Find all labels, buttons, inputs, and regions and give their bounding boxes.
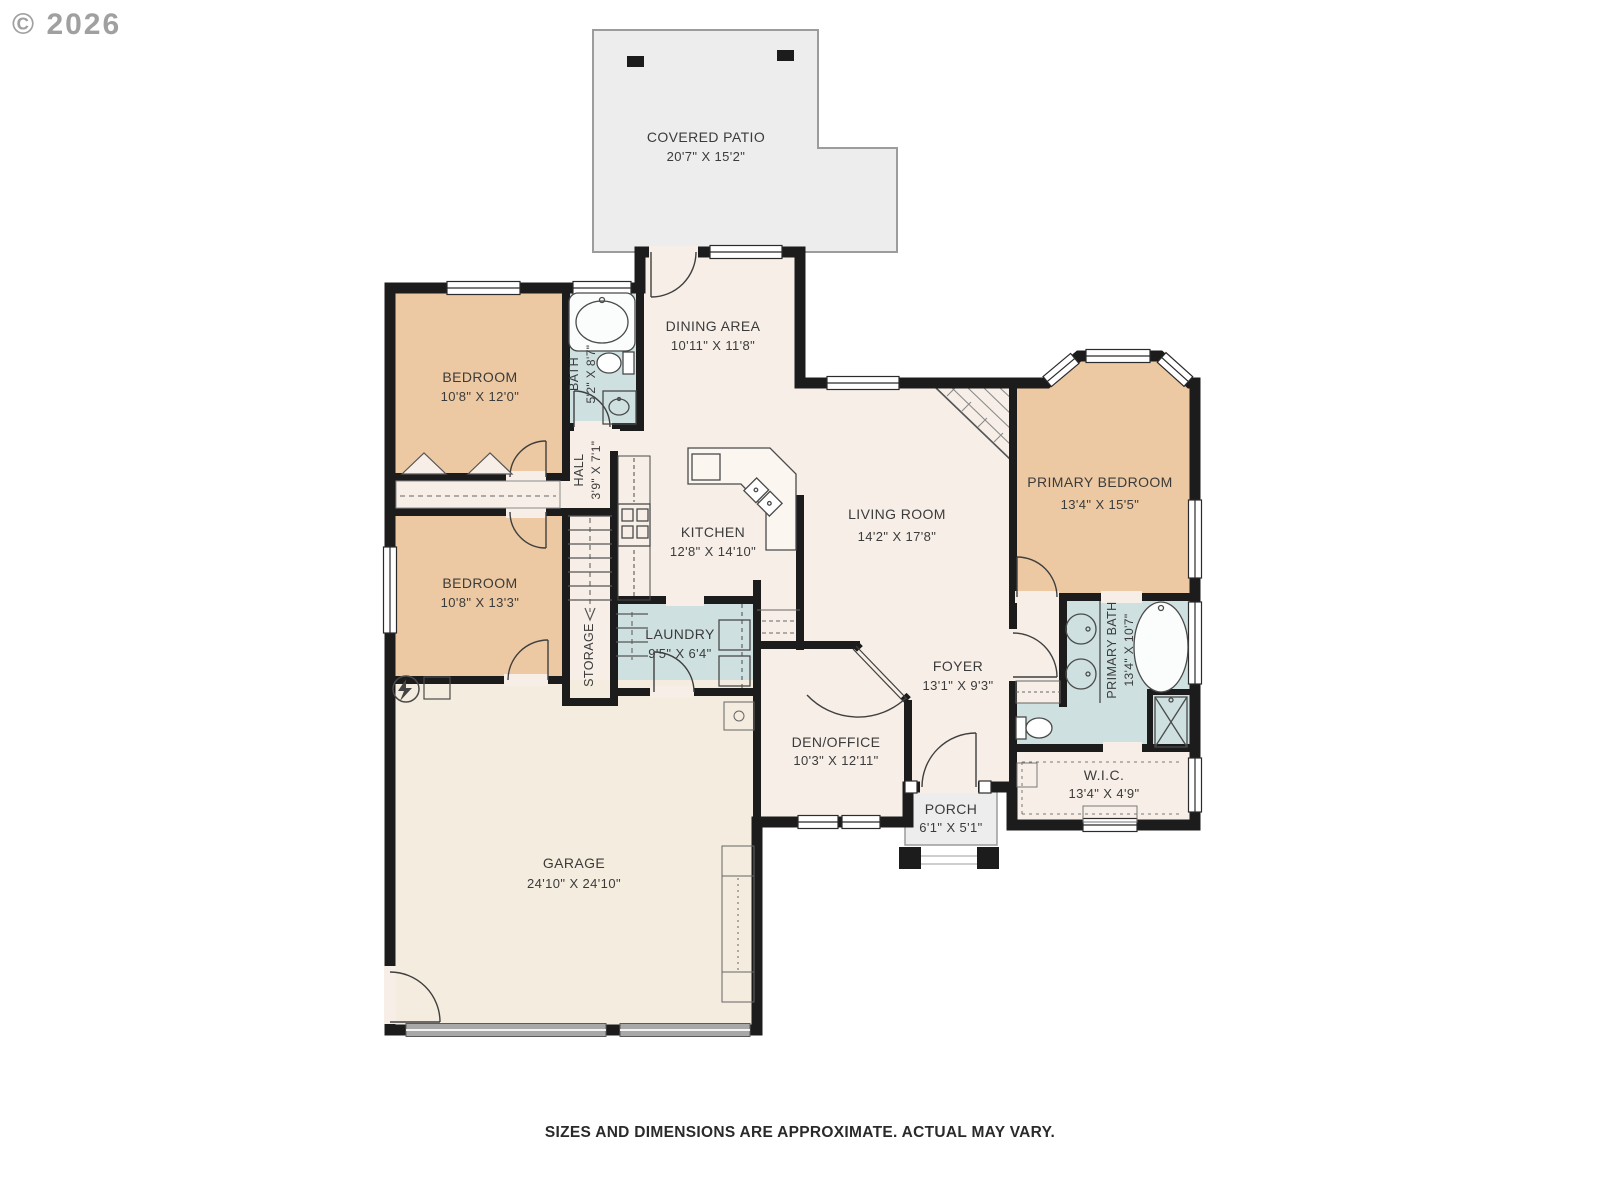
window bbox=[827, 377, 899, 390]
svg-text:6'1" X 5'1": 6'1" X 5'1" bbox=[919, 820, 982, 835]
window bbox=[1189, 758, 1202, 812]
svg-text:PRIMARY BATH: PRIMARY BATH bbox=[1105, 601, 1119, 698]
svg-text:BEDROOM: BEDROOM bbox=[442, 575, 517, 591]
porch-post bbox=[977, 847, 999, 869]
room-laundry bbox=[614, 598, 757, 692]
window bbox=[1189, 500, 1202, 578]
floor-plan-page: © 2026 bbox=[0, 0, 1600, 1200]
svg-text:COVERED PATIO: COVERED PATIO bbox=[647, 129, 765, 145]
svg-text:DINING AREA: DINING AREA bbox=[666, 318, 761, 334]
window bbox=[798, 816, 838, 829]
window bbox=[710, 246, 782, 259]
window bbox=[842, 816, 880, 829]
porch-post bbox=[899, 847, 921, 869]
svg-text:9'5" X 6'4": 9'5" X 6'4" bbox=[648, 646, 711, 661]
patio-post bbox=[627, 56, 644, 67]
svg-text:PORCH: PORCH bbox=[925, 801, 978, 817]
soaking-tub-icon bbox=[1134, 602, 1188, 692]
window bbox=[1086, 350, 1150, 363]
svg-text:STORAGE: STORAGE bbox=[582, 623, 596, 687]
bathtub-icon bbox=[569, 293, 635, 351]
svg-text:10'3" X 12'11": 10'3" X 12'11" bbox=[793, 753, 878, 768]
svg-text:BEDROOM: BEDROOM bbox=[442, 369, 517, 385]
room-label-storage: STORAGE bbox=[582, 623, 596, 687]
svg-text:LIVING ROOM: LIVING ROOM bbox=[848, 506, 946, 522]
svg-text:12'8" X 14'10": 12'8" X 14'10" bbox=[670, 544, 756, 559]
svg-text:GARAGE: GARAGE bbox=[543, 855, 605, 871]
svg-text:DEN/OFFICE: DEN/OFFICE bbox=[792, 734, 881, 750]
svg-text:3'9" X 7'1": 3'9" X 7'1" bbox=[589, 441, 603, 500]
svg-text:13'4" X 15'5": 13'4" X 15'5" bbox=[1061, 497, 1140, 512]
window bbox=[979, 781, 991, 793]
svg-text:LAUNDRY: LAUNDRY bbox=[645, 626, 715, 642]
svg-text:13'1" X 9'3": 13'1" X 9'3" bbox=[922, 678, 993, 693]
svg-text:14'2" X 17'8": 14'2" X 17'8" bbox=[858, 529, 937, 544]
garage-doors bbox=[406, 1024, 750, 1037]
svg-text:HALL: HALL bbox=[572, 454, 586, 487]
svg-text:10'8" X 13'3": 10'8" X 13'3" bbox=[441, 595, 520, 610]
window bbox=[1189, 602, 1202, 684]
svg-text:10'8" X 12'0": 10'8" X 12'0" bbox=[441, 389, 520, 404]
svg-text:20'7" X 15'2": 20'7" X 15'2" bbox=[667, 149, 746, 164]
svg-text:BATH: BATH bbox=[567, 357, 581, 391]
window bbox=[1083, 819, 1137, 832]
window bbox=[447, 282, 520, 295]
window bbox=[384, 547, 397, 633]
svg-text:24'10" X 24'10": 24'10" X 24'10" bbox=[527, 876, 621, 891]
svg-text:PRIMARY BEDROOM: PRIMARY BEDROOM bbox=[1027, 474, 1173, 490]
porch-posts bbox=[899, 847, 999, 869]
svg-text:13'4" X 4'9": 13'4" X 4'9" bbox=[1068, 786, 1139, 801]
window bbox=[905, 781, 917, 793]
toilet-icon bbox=[597, 352, 634, 374]
floor-plan-svg: COVERED PATIO 20'7" X 15'2" DINING AREA … bbox=[0, 0, 1600, 1200]
svg-text:W.I.C.: W.I.C. bbox=[1084, 767, 1125, 783]
patio-post bbox=[777, 50, 794, 61]
svg-text:KITCHEN: KITCHEN bbox=[681, 524, 745, 540]
svg-text:FOYER: FOYER bbox=[933, 658, 983, 674]
disclaimer-text: SIZES AND DIMENSIONS ARE APPROXIMATE. AC… bbox=[0, 1124, 1600, 1142]
svg-text:13'4" X 10'7": 13'4" X 10'7" bbox=[1122, 613, 1136, 686]
svg-text:5'2" X 8'7": 5'2" X 8'7" bbox=[584, 345, 598, 404]
toilet-icon bbox=[1016, 717, 1052, 739]
svg-text:10'11" X 11'8": 10'11" X 11'8" bbox=[671, 338, 755, 353]
